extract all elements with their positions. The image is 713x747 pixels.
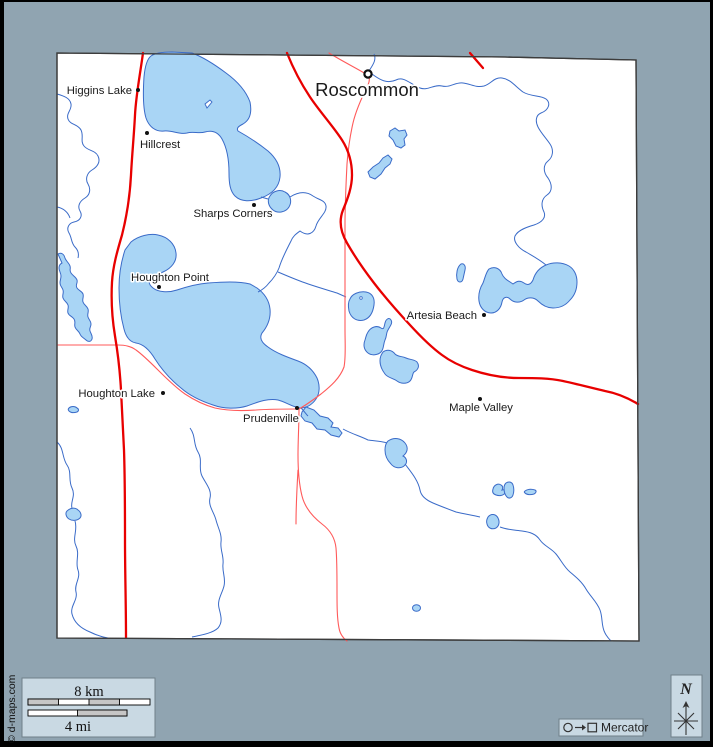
- roscommon-marker: [364, 70, 371, 77]
- maple-valley-marker: [478, 397, 482, 401]
- houghton-lake-marker: [161, 391, 165, 395]
- chain-lake-islet: [360, 297, 363, 300]
- scale-mi-label: 4 mi: [65, 719, 91, 735]
- houghton-point-marker: [157, 285, 161, 289]
- projection-legend: Mercator: [559, 719, 648, 736]
- prudenville-marker: [295, 406, 299, 410]
- small-lake-shape: [504, 482, 514, 498]
- small-lake-shape: [487, 514, 499, 528]
- tiny-pond: [413, 605, 421, 612]
- hillcrest-marker: [145, 131, 149, 135]
- small-lake-shape: [524, 489, 536, 494]
- higgins-lake-marker: [136, 88, 140, 92]
- west-tiny-lake: [68, 407, 78, 413]
- houghton-point-label: Houghton Point: [131, 272, 210, 284]
- copyright-credit: © d-maps.com: [6, 674, 18, 743]
- north-label: N: [679, 681, 693, 698]
- scale-km-label: 8 km: [74, 684, 104, 700]
- scale-km-bar: [28, 699, 150, 705]
- west-small-lake: [66, 508, 81, 520]
- north-arrow-panel: N: [671, 675, 702, 737]
- map-screenshot: Roscommon Higgins Lake Hillcrest Sharps …: [0, 0, 713, 747]
- hillcrest-label: Hillcrest: [140, 139, 181, 151]
- maple-valley-label: Maple Valley: [449, 402, 513, 414]
- sharps-corners-marker: [252, 203, 256, 207]
- roscommon-label: Roscommon: [315, 79, 419, 100]
- scale-bar-panel: 8 km 4 mi: [22, 678, 155, 737]
- artesia-beach-marker: [482, 313, 486, 317]
- artesia-beach-label: Artesia Beach: [407, 310, 477, 322]
- sharps-corners-label: Sharps Corners: [193, 208, 272, 220]
- higgins-lake-label: Higgins Lake: [67, 85, 132, 97]
- projection-label: Mercator: [601, 721, 648, 735]
- houghton-lake-label: Houghton Lake: [78, 388, 155, 400]
- scale-mi-bar: [28, 710, 127, 716]
- prudenville-label: Prudenville: [243, 413, 299, 425]
